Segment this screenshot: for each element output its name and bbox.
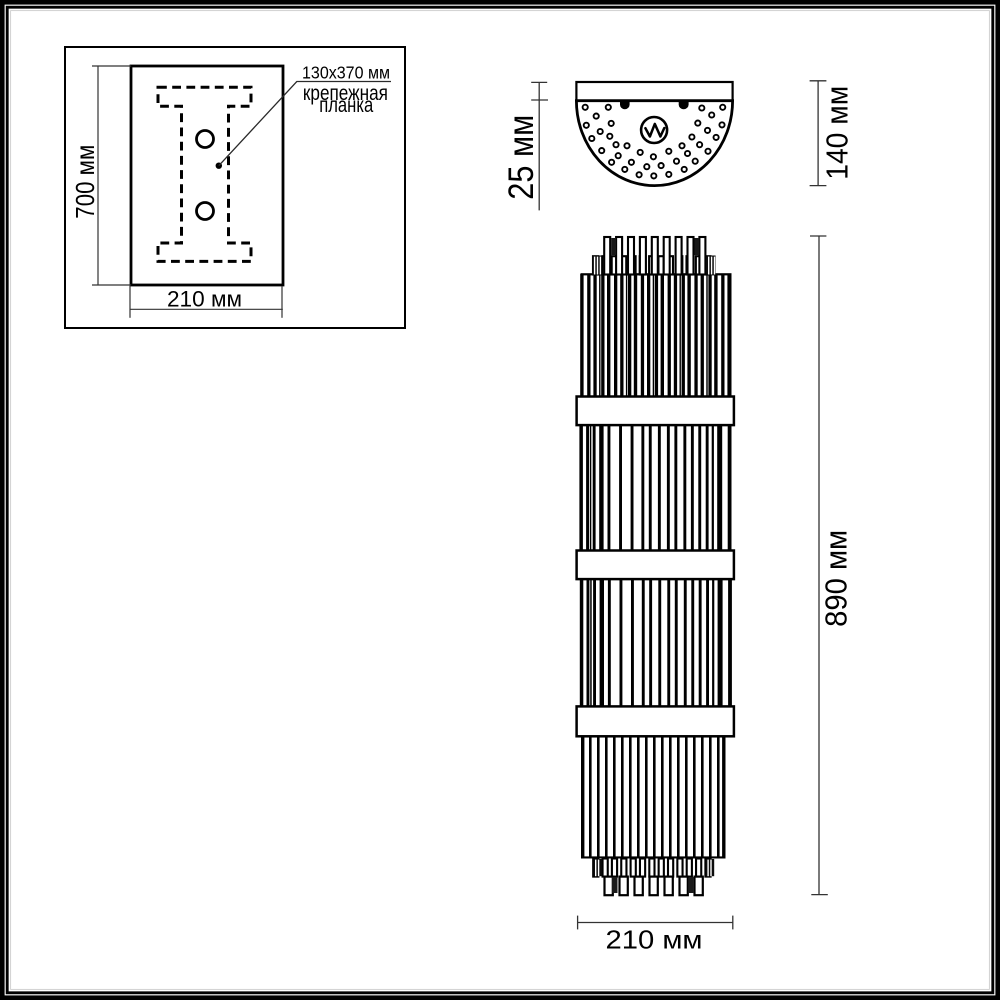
- svg-text:25 мм: 25 мм: [502, 115, 541, 200]
- svg-text:210 мм: 210 мм: [167, 287, 242, 312]
- svg-text:700 мм: 700 мм: [70, 145, 100, 219]
- svg-text:890 мм: 890 мм: [818, 530, 853, 627]
- svg-text:210 мм: 210 мм: [606, 925, 703, 955]
- svg-text:планка: планка: [319, 94, 374, 118]
- svg-text:140 мм: 140 мм: [820, 86, 855, 180]
- svg-text:130x370 мм: 130x370 мм: [302, 63, 390, 83]
